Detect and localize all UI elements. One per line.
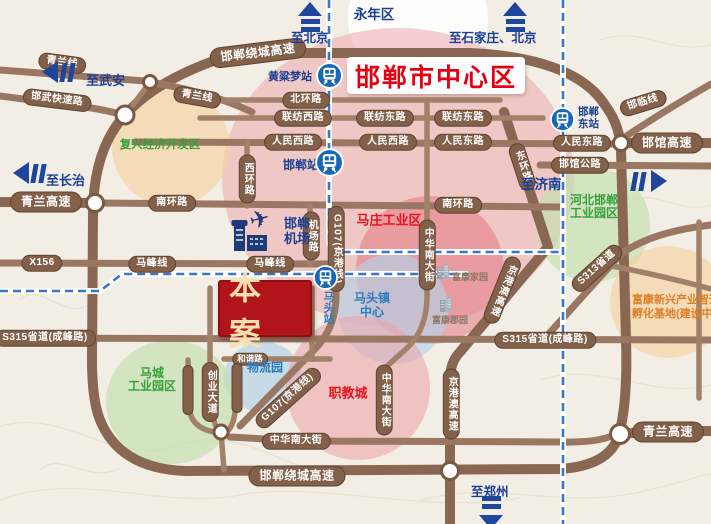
map-canvas: 青兰线 青兰线 邯武快速路 邯郸绕城高速 北环路 联纺西路 联纺东路 联纺东路 … [0,0,711,524]
matou-station-icon [313,265,338,290]
district-fukang-base: 富康新兴产业智造 孵化基地(建设中 [632,293,711,321]
station-label-huangliangmeng: 黄粱梦站 [268,68,312,84]
airport-icon: ✈ [228,203,282,255]
road-label-renmin-west-1: 人民西路 [264,134,322,151]
airport-label-line2: 机场 [284,231,310,246]
road-label-qinglan-expwy-east: 青兰高速 [632,422,704,443]
arrow-jinan-icon [632,170,667,192]
road-label-jinggangao-v: 京港澳高速 [443,369,460,440]
road-label-xihuan: 西环路 [239,155,256,204]
station-label-handandong: 邯郸 东站 [578,107,599,130]
station-label-handan: 邯郸站 [283,156,319,173]
road-label-s315-west: S315省道(成峰路) [0,330,96,347]
road-label-renmin-east-1: 人民东路 [434,134,492,151]
district-hebei-line2: 工业园区 [570,207,618,220]
district-fukang-line1: 富康新兴产业智造 [632,293,711,307]
road-label-s315-east: S315省道(成峰路) [494,332,596,349]
station-label-matou: 马头站 [320,291,336,324]
district-macheng-line2: 工业园区 [128,380,176,393]
road-label-renmin-east-2: 人民东路 [553,135,611,152]
road-label-nanhuan-1: 南环路 [148,195,196,212]
arrow-beijing-icon [298,2,322,32]
road-label-zhonghua-h: 中华南大街 [262,433,331,450]
arrow-wuan-label: 至武安 [86,70,125,89]
district-yongnian: 永年区 [354,3,395,23]
road-label-hanguan-hwy: 邯馆公路 [551,157,609,174]
city-center-title: 邯郸市中心区 [347,57,525,94]
district-matou-center: 马头镇 中心 [354,291,390,319]
road-label-lianfang-east-1: 联纺东路 [356,110,414,127]
train-station-icon [315,148,344,177]
building-icon-1 [436,263,450,279]
road-label-chuangye: 创业大道 [202,362,219,422]
road-label-small-1 [183,365,194,415]
s315-road [0,338,711,340]
station-handandong-line2: 东站 [578,119,599,131]
airport-label: 邯郸 机场 [284,216,310,246]
district-zhijiao: 职教城 [328,383,367,402]
district-hebei-park: 河北邯郸 工业园区 [570,194,618,220]
district-matou-line1: 马头镇 [354,291,390,305]
district-matou-line2: 中心 [354,305,390,319]
arrow-wuan-icon [42,61,74,83]
road-label-lianfang-east-2: 联纺东路 [434,110,492,127]
road-label-hanguan-expwy: 邯馆高速 [631,133,703,154]
arrow-zhengzhou-icon [479,496,503,524]
road-label-lianfang-west: 联纺西路 [274,110,332,127]
road-label-zhonghua-s: 中华南大街 [376,365,393,436]
district-fuxing: 复兴经济开发区 [120,136,201,152]
metro-station-icon [316,62,343,89]
svg-text:✈: ✈ [247,204,273,235]
district-macheng: 马城 工业园区 [128,367,176,393]
district-wuliu: 物流园 [247,359,283,376]
district-fukang-line2: 孵化基地(建设中 [632,307,711,321]
building-label-fukang-junyuan: 富康郡园 [432,313,468,326]
arrow-shijiazhuang-icon [503,2,527,32]
east-station-icon [550,107,575,132]
road-label-zhonghua-n: 中华南大街 [419,220,436,291]
road-label-qinglan-expwy-west: 青兰高速 [10,192,82,213]
road-label-x156: X156 [21,255,62,272]
road-label-renmin-west-2: 人民西路 [359,134,417,151]
station-handandong-line1: 邯郸 [578,107,599,119]
arrow-changzhi-icon [13,162,45,184]
airport-label-line1: 邯郸 [284,216,310,231]
district-mazhuang: 马庄工业区 [356,210,421,229]
road-label-nanhuan-2: 南环路 [434,197,482,214]
building-label-fukang-jiayuan: 富康家园 [452,270,488,283]
building-icon-2 [439,296,453,312]
road-label-small-2 [232,363,243,413]
arrow-jinan-label: 至济南 [521,173,562,193]
arrow-changzhi-label: 至长治 [46,170,85,189]
road-label-beihuan: 北环路 [282,92,330,109]
project-marker: 本案 [218,280,312,337]
road-label-ring-bottom: 邯郸绕城高速 [248,466,345,487]
road-label-mafeng-1: 马峰线 [128,256,176,273]
